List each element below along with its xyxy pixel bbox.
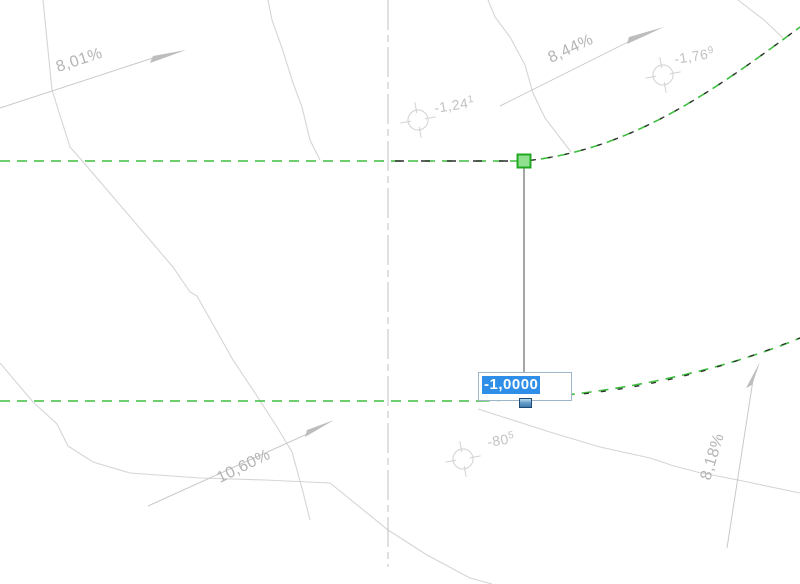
contour-line	[268, 0, 320, 160]
elevation-input-selected-text[interactable]: -1,0000	[482, 376, 540, 394]
slope-label-se: 8,18%	[698, 431, 728, 482]
spot-elevation-label: -1,769	[673, 45, 715, 67]
elevation-input[interactable]: -1,0000	[478, 372, 572, 401]
slope-label-nw: 8,01%	[54, 45, 105, 76]
spot-elevation-label: -1,241	[433, 94, 475, 116]
spot-elevation-symbol	[397, 99, 439, 141]
selection-highlight-lower-curve	[560, 338, 800, 396]
spot-elevation-symbol	[442, 438, 484, 480]
slope-arrowhead-se	[746, 362, 760, 388]
slope-arrow-se	[727, 380, 753, 548]
slope-label-sw: 10,60%	[214, 446, 273, 486]
drawing-layer: 8,01% 8,44% 10,60% 8,18% -1,241 -1,769 -…	[0, 0, 800, 584]
vertex-grip[interactable]	[518, 155, 531, 168]
contour-line	[738, 0, 783, 38]
slope-arrowhead-ne	[627, 27, 664, 44]
edge-grip[interactable]	[519, 398, 532, 408]
slope-arrowhead-sw	[305, 420, 334, 437]
contour-line	[488, 0, 571, 152]
contour-line	[43, 0, 310, 520]
slope-arrowhead-nw	[150, 50, 186, 63]
spot-elevation-label: -805	[486, 430, 516, 450]
contour-line	[478, 409, 800, 493]
drawing-canvas[interactable]: 8,01% 8,44% 10,60% 8,18% -1,241 -1,769 -…	[0, 0, 800, 584]
